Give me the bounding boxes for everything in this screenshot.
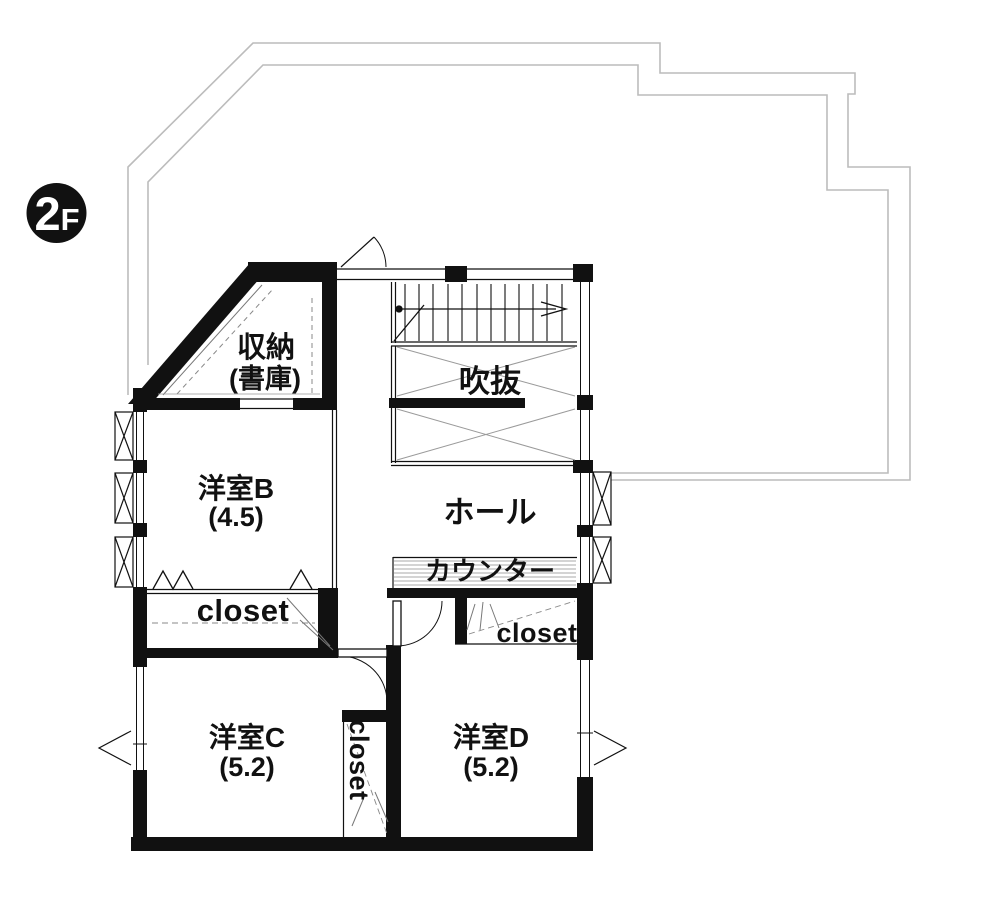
left-chevron-icon	[99, 731, 131, 765]
folding-door-marks	[153, 570, 312, 589]
shutter-box-icon	[115, 412, 133, 460]
room-d-door	[393, 601, 442, 646]
room-c-area-label: (5.2)	[219, 752, 275, 782]
closet-c-label: closet	[344, 719, 374, 800]
closet-b-label: closet	[197, 593, 290, 628]
closet-d-label: closet	[496, 618, 577, 648]
balcony-outline	[128, 43, 910, 480]
room-b-label: 洋室B	[198, 472, 274, 504]
room-d-label: 洋室D	[453, 721, 529, 753]
floor-badge-number: 2	[34, 187, 60, 240]
room-c-label: 洋室C	[209, 721, 285, 753]
stair-direction-arrow	[394, 302, 566, 341]
balcony-door	[341, 237, 386, 267]
right-chevron-icon	[594, 731, 626, 765]
room-d-area-label: (5.2)	[463, 752, 519, 782]
shutter-box-icon	[593, 537, 611, 583]
doors	[338, 237, 442, 702]
room-b-area-label: (4.5)	[208, 502, 264, 532]
stairs	[394, 284, 566, 341]
counter-label: カウンター	[425, 556, 555, 586]
floor-badge: 2F	[27, 183, 87, 243]
shutter-box-icon	[115, 537, 133, 587]
floor-plan-page: 2F 収納 (書庫) 吹抜 洋室B (4.5) ホール カウンター closet…	[0, 0, 1000, 900]
void-label: 吹抜	[459, 364, 521, 399]
storage-label: 収納	[237, 330, 295, 364]
shutter-box-icon	[593, 472, 611, 525]
shutter-box-icon	[115, 473, 133, 523]
storage-sub-label: (書庫)	[229, 364, 301, 394]
floor-plan-drawing: 2F 収納 (書庫) 吹抜 洋室B (4.5) ホール カウンター closet…	[0, 0, 1000, 900]
floor-badge-suffix: F	[61, 202, 80, 237]
room-c-door	[338, 649, 387, 702]
hall-label: ホール	[444, 495, 537, 530]
